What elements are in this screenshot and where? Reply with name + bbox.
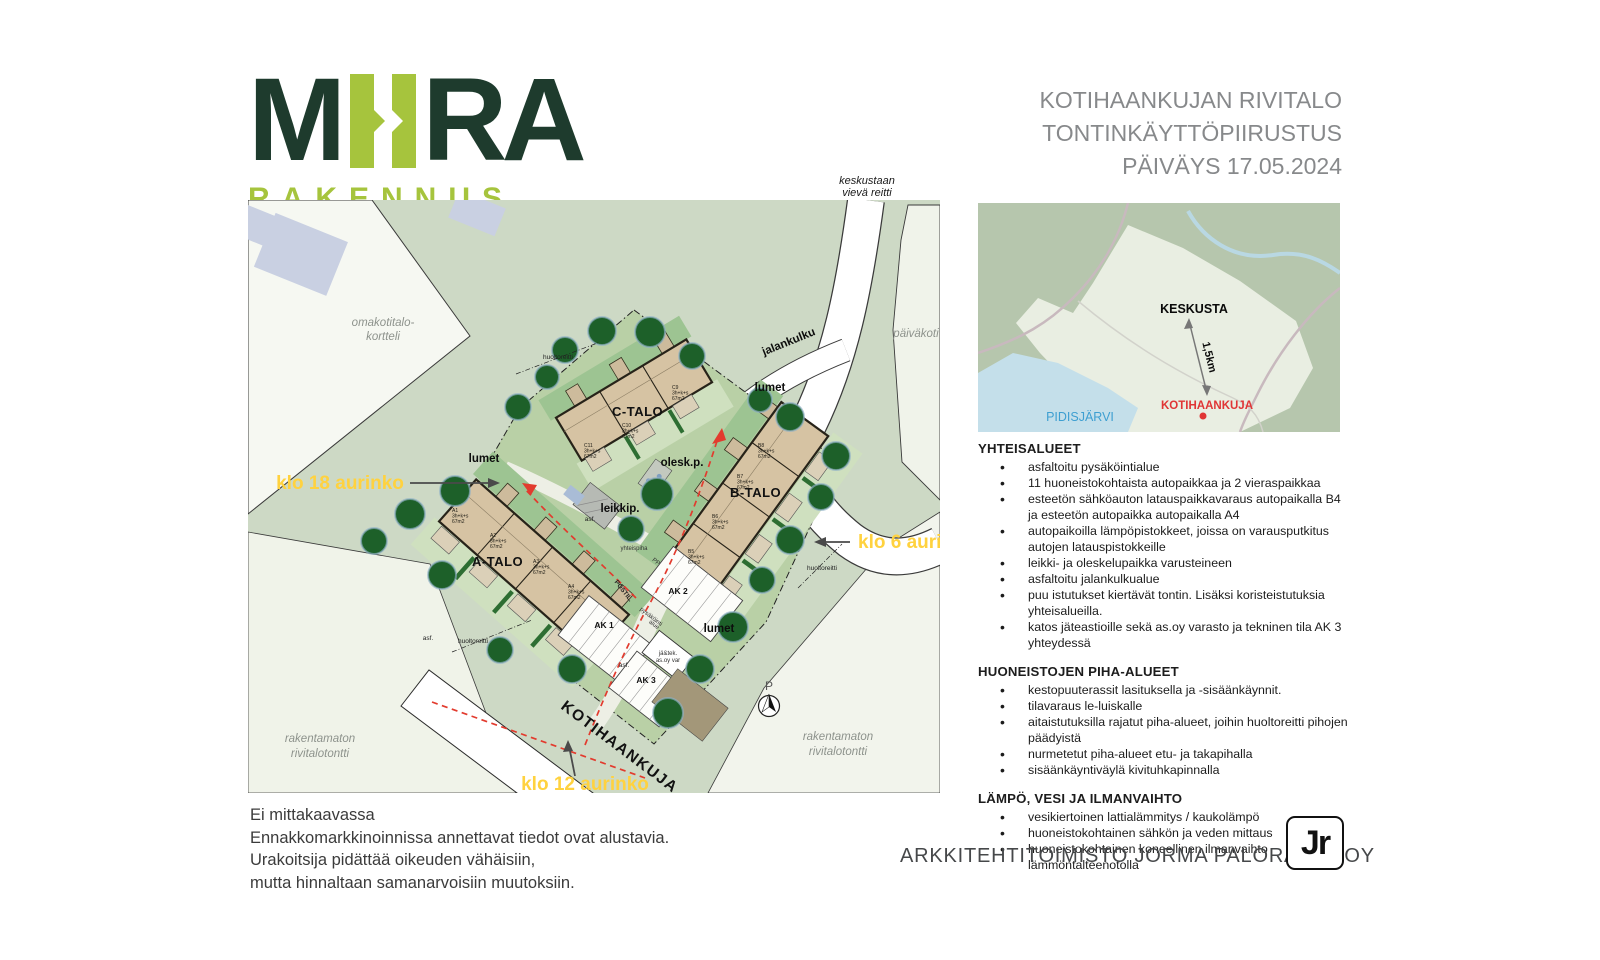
logo-word: M RA bbox=[248, 74, 588, 174]
tree-icon bbox=[679, 343, 705, 369]
service-route-label-2: huoltoreitti bbox=[458, 638, 488, 645]
logo-letter-ra: RA bbox=[422, 74, 580, 166]
sun-evening-label: klo 18 aurinko bbox=[276, 473, 404, 494]
shared-yard-label: yhteispiha bbox=[620, 546, 648, 552]
drawing-sheet: { "logo": {"m": "M", "ra": "RA", "sub": … bbox=[0, 0, 1600, 960]
map-lake-label: PIDISJÄRVI bbox=[1046, 410, 1114, 424]
seating-label: olesk.p. bbox=[661, 457, 704, 469]
list-item: asfaltoitu jalankulkualue bbox=[978, 571, 1350, 587]
disclaimer-line: Ennakkomarkkinoinnissa annettavat tiedot… bbox=[250, 827, 669, 850]
disclaimer-line: Urakoitsija pidättää oikeuden vähäisiin, bbox=[250, 849, 669, 872]
ak3-label: AK 3 bbox=[636, 675, 656, 685]
tree-icon bbox=[440, 476, 470, 506]
tree-icon bbox=[776, 403, 804, 431]
tree-icon bbox=[558, 655, 586, 683]
list-item: puu istutukset kiertävät tontin. Lisäksi… bbox=[978, 587, 1350, 619]
logo-h-right-bar bbox=[392, 74, 416, 168]
waste-label-2: as.oy var bbox=[656, 658, 680, 664]
asphalt-label-3: asf. bbox=[423, 635, 434, 642]
route-to-center-label: keskustaan vievä reitti bbox=[815, 175, 919, 199]
omakotitalo-label-2: kortteli bbox=[366, 331, 400, 343]
architect-stamp-logo: Jr bbox=[1286, 816, 1344, 870]
building-c-name: C-TALO bbox=[612, 404, 663, 419]
section-heading-hvac: LÄMPÖ, VESI JA ILMANVAIHTO bbox=[978, 791, 1350, 806]
architect-firm-name: ARKKITEHTITOIMISTO JORMA PALORANTA OY bbox=[900, 845, 1262, 868]
tree-icon bbox=[505, 394, 531, 420]
snow-label-2: lumet bbox=[469, 453, 500, 465]
list-item: aitaistutuksilla rajatut piha-alueet, jo… bbox=[978, 714, 1350, 746]
omakotitalo-label-1: omakotitalo- bbox=[352, 317, 415, 329]
waste-label-1: jä&tek. bbox=[658, 651, 678, 657]
snow-label-3: lumet bbox=[704, 623, 735, 635]
daycare-label: päiväkoti bbox=[892, 328, 939, 340]
tree-icon bbox=[428, 561, 456, 589]
list-item: esteetön sähköauton latauspaikkavaraus a… bbox=[978, 491, 1350, 523]
drawing-date: PÄIVÄYS 17.05.2024 bbox=[990, 150, 1342, 183]
company-logo: M RA RAKENNUS bbox=[248, 74, 588, 216]
list-item: autopaikoilla lämpöpistokkeet, joissa on… bbox=[978, 523, 1350, 555]
tree-icon bbox=[776, 526, 804, 554]
tree-icon bbox=[395, 499, 425, 529]
list-item: nurmetetut piha-alueet etu- ja takapihal… bbox=[978, 746, 1350, 762]
ak1-label: AK 1 bbox=[594, 620, 614, 630]
list-item: asfaltoitu pysäköintialue bbox=[978, 459, 1350, 475]
list-item: 11 huoneistokohtaista autopaikkaa ja 2 v… bbox=[978, 475, 1350, 491]
tree-icon bbox=[535, 365, 559, 389]
building-a-name: A-TALO bbox=[472, 554, 523, 569]
tree-icon bbox=[653, 698, 683, 728]
tree-icon bbox=[618, 516, 644, 542]
asphalt-label-2: asf. bbox=[619, 662, 630, 669]
sun-morning-label: klo 6 aurinko bbox=[858, 532, 940, 553]
vacant-left-label-1: rakentamaton bbox=[285, 733, 355, 745]
site-plan: P omakotitalo- kortteli päiväkoti rakent… bbox=[248, 200, 940, 793]
ak2-label: AK 2 bbox=[668, 586, 688, 596]
location-map: KESKUSTA 1,5km KOTIHAANKUJA PIDISJÄRVI bbox=[978, 203, 1340, 432]
logo-h-arrow-icon bbox=[350, 74, 416, 168]
playground-label: leikkip. bbox=[601, 503, 640, 515]
sun-noon-label: klo 12 aurinko bbox=[521, 774, 649, 793]
tree-icon bbox=[588, 317, 616, 345]
list-item: leikki- ja oleskelupaikka varusteineen bbox=[978, 555, 1350, 571]
tree-icon bbox=[749, 567, 775, 593]
logo-letter-m: M bbox=[248, 74, 340, 166]
vacant-right-label-2: rivitalotontti bbox=[809, 746, 868, 758]
map-center-label: KESKUSTA bbox=[1160, 302, 1228, 316]
section-heading-yards: HUONEISTOJEN PIHA-ALUEET bbox=[978, 664, 1350, 679]
route-label-line2: vievä reitti bbox=[815, 187, 919, 199]
logo-h-left-bar bbox=[350, 74, 385, 168]
vacant-left-label-2: rivitalotontti bbox=[291, 748, 350, 760]
compass-label: P bbox=[765, 679, 773, 693]
tree-icon bbox=[641, 478, 673, 510]
project-title: KOTIHAANKUJAN RIVITALO bbox=[990, 84, 1342, 117]
tree-icon bbox=[686, 655, 714, 683]
service-route-label-3: huoltoreitti bbox=[807, 565, 837, 572]
list-item: kestopuuterassit lasituksella ja -sisään… bbox=[978, 682, 1350, 698]
tree-icon bbox=[487, 637, 513, 663]
route-label-line1: keskustaan bbox=[815, 175, 919, 187]
tree-icon bbox=[635, 317, 665, 347]
common-areas-list: asfaltoitu pysäköintialue 11 huoneistoko… bbox=[978, 459, 1350, 651]
drawing-type: TONTINKÄYTTÖPIIRUSTUS bbox=[990, 117, 1342, 150]
asphalt-label-1: asf. bbox=[585, 516, 596, 523]
tree-icon bbox=[822, 442, 850, 470]
disclaimer-line: mutta hinnaltaan samanarvoisiin muutoksi… bbox=[250, 872, 669, 895]
list-item: katos jäteastioille sekä as.oy varasto j… bbox=[978, 619, 1350, 651]
service-route-label-1: huoltoreitti bbox=[543, 354, 573, 361]
map-site-dot bbox=[1200, 413, 1207, 420]
tree-icon bbox=[361, 528, 387, 554]
list-item: sisäänkäyntiväylä kivituhkapinnalla bbox=[978, 762, 1350, 778]
section-heading-common-areas: YHTEISALUEET bbox=[978, 441, 1350, 456]
tree-icon bbox=[808, 484, 834, 510]
list-item: tilavaraus le-luiskalle bbox=[978, 698, 1350, 714]
title-block: KOTIHAANKUJAN RIVITALO TONTINKÄYTTÖPIIRU… bbox=[990, 84, 1342, 183]
map-site-label: KOTIHAANKUJA bbox=[1161, 400, 1253, 412]
vacant-right-label-1: rakentamaton bbox=[803, 731, 873, 743]
yards-list: kestopuuterassit lasituksella ja -sisään… bbox=[978, 682, 1350, 778]
snow-label-1: lumet bbox=[755, 382, 786, 394]
disclaimer: Ei mittakaavassa Ennakkomarkkinoinnissa … bbox=[250, 804, 669, 894]
disclaimer-line: Ei mittakaavassa bbox=[250, 804, 669, 827]
